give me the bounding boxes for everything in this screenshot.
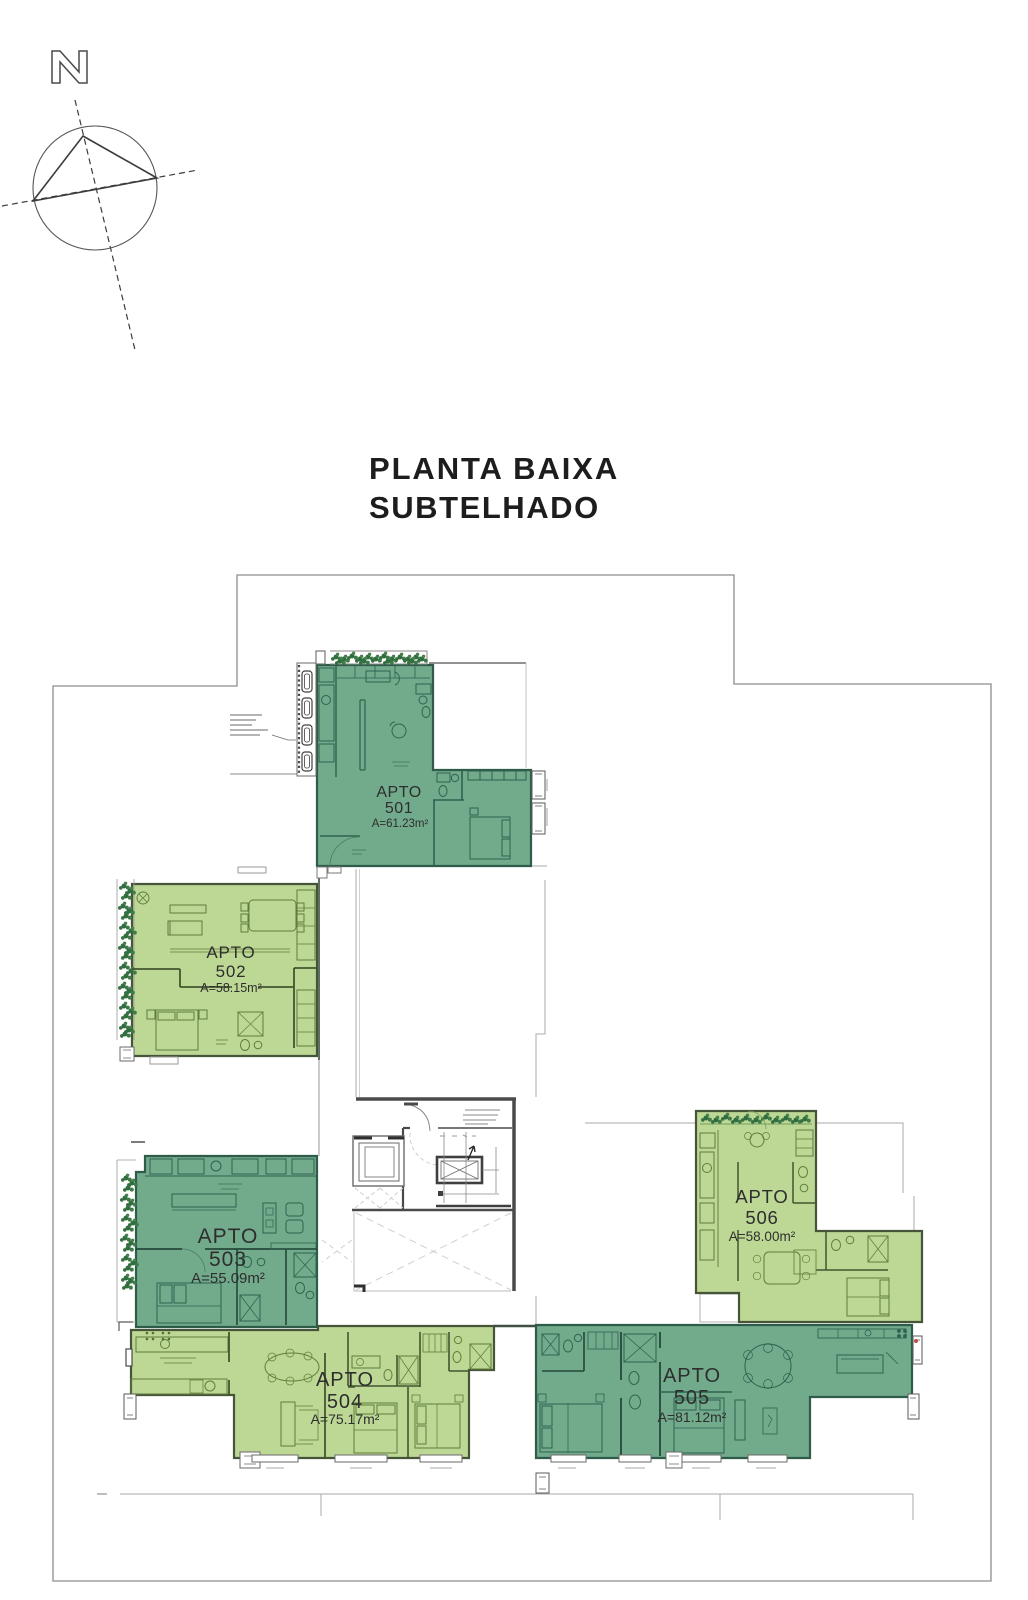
svg-text:501: 501 <box>385 800 413 817</box>
svg-text:APTO: APTO <box>206 943 255 962</box>
svg-text:APTO: APTO <box>316 1369 374 1391</box>
svg-text:APTO: APTO <box>376 784 421 801</box>
svg-text:502: 502 <box>216 962 247 981</box>
svg-text:503: 503 <box>209 1248 247 1271</box>
svg-text:PLANTA BAIXA: PLANTA BAIXA <box>369 451 619 486</box>
svg-text:SUBTELHADO: SUBTELHADO <box>369 490 600 525</box>
svg-text:A=58.15m²: A=58.15m² <box>200 981 262 995</box>
svg-text:A=55.09m²: A=55.09m² <box>191 1270 265 1287</box>
svg-text:A=75.17m²: A=75.17m² <box>311 1411 380 1427</box>
svg-text:APTO: APTO <box>735 1186 788 1207</box>
svg-text:A=81.12m²: A=81.12m² <box>658 1409 727 1425</box>
svg-text:505: 505 <box>674 1387 710 1409</box>
svg-text:APTO: APTO <box>198 1225 259 1248</box>
svg-text:504: 504 <box>327 1391 363 1413</box>
svg-text:A=58.00m²: A=58.00m² <box>729 1229 796 1244</box>
svg-text:506: 506 <box>745 1207 778 1228</box>
svg-text:APTO: APTO <box>663 1365 721 1387</box>
svg-text:A=61.23m²: A=61.23m² <box>372 818 429 830</box>
